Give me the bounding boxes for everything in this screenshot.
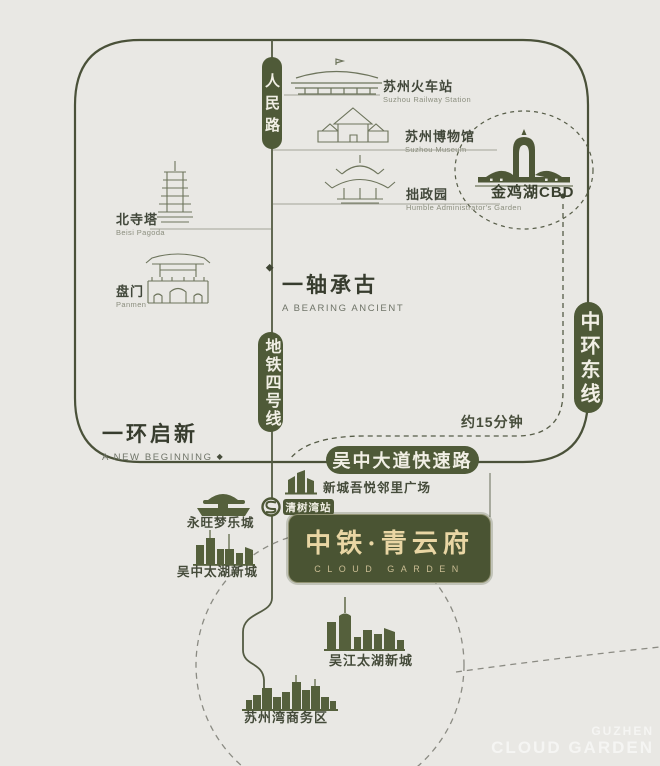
railway-station-label: 苏州火车站 Suzhou Railway Station <box>383 80 471 105</box>
travel-time-label: 约15分钟 <box>461 415 524 430</box>
wuzhong-taihu-label: 吴中太湖新城 <box>177 566 258 580</box>
panmen-icon <box>146 254 210 303</box>
museum-label-en: Suzhou Museum <box>405 146 475 154</box>
beisi-pagoda-label-zh: 北寺塔 <box>116 213 165 227</box>
jinji-lake-cbd-icon <box>475 129 573 186</box>
wuyue-plaza-icon <box>285 470 317 495</box>
metro-logo-icon <box>263 499 280 516</box>
jinji-lake-cbd-label: 金鸡湖CBD <box>491 185 575 202</box>
museum-label: 苏州博物馆 Suzhou Museum <box>405 130 475 155</box>
watermark-line2: CLOUD GARDEN <box>491 738 654 758</box>
qingshuwan-station-chip: 清树湾站 <box>283 499 334 515</box>
aeon-mall-icon <box>197 494 250 516</box>
panmen-label-en: Panmen <box>116 301 146 309</box>
map-artwork <box>0 0 660 766</box>
diamond-marker: ◆ <box>217 452 225 461</box>
panmen-label-zh: 盘门 <box>116 285 146 299</box>
wuzhong-expressway-pill: 吴中大道快速路 <box>326 446 479 474</box>
watermark-line1: GUZHEN <box>491 725 654 739</box>
humble-garden-icon <box>325 155 395 203</box>
suzhou-bay-label: 苏州湾商务区 <box>244 711 328 725</box>
axis-slogan-en: A BEARING ANCIENT <box>282 303 404 314</box>
location-map: 人民路 地铁四号线 中环东线 吴中大道快速路 苏州火车站 Suzhou Rail… <box>0 0 660 766</box>
project-name: 中铁·青云府 <box>305 523 474 560</box>
axis-slogan-zh: 一轴承古 <box>282 269 404 299</box>
suzhou-museum-icon <box>318 108 388 142</box>
aeon-mall-label: 永旺梦乐城 <box>187 517 255 531</box>
humble-garden-label-en: Humble Administrator's Garden <box>406 204 522 212</box>
wujiang-taihu-skyline-icon <box>324 597 405 651</box>
wuzhong-taihu-skyline-icon <box>193 530 255 566</box>
wuyue-plaza-label: 新城吾悦邻里广场 <box>323 482 431 496</box>
wujiang-taihu-label: 吴江太湖新城 <box>329 654 413 668</box>
ring-slogan-en: A NEW BEGINNING◆ <box>102 452 224 463</box>
ring-slogan-en-text: A NEW BEGINNING <box>102 452 213 463</box>
project-name-en: CLOUD GARDEN <box>314 564 465 574</box>
railway-station-icon <box>291 59 382 94</box>
beisi-pagoda-label-en: Beisi Pagoda <box>116 229 165 237</box>
east-dashed-line <box>456 647 660 672</box>
railway-station-label-en: Suzhou Railway Station <box>383 96 471 104</box>
beisi-pagoda-label: 北寺塔 Beisi Pagoda <box>116 213 165 238</box>
project-box: 中铁·青云府 CLOUD GARDEN <box>288 514 491 583</box>
ring-slogan-zh: 一环启新 <box>102 418 224 448</box>
suzhou-bay-skyline-icon <box>242 675 338 711</box>
middle-ring-east-pill: 中环东线 <box>574 302 603 413</box>
renmin-road-pill: 人民路 <box>262 57 282 149</box>
ring-slogan: 一环启新 A NEW BEGINNING◆ <box>102 418 224 463</box>
metro-line-4-pill: 地铁四号线 <box>258 332 283 432</box>
museum-label-zh: 苏州博物馆 <box>405 130 475 144</box>
railway-station-label-zh: 苏州火车站 <box>383 80 471 94</box>
watermark: GUZHEN CLOUD GARDEN <box>491 725 654 758</box>
axis-slogan: 一轴承古 A BEARING ANCIENT <box>282 269 404 314</box>
panmen-label: 盘门 Panmen <box>116 285 146 310</box>
ring-road-line <box>75 40 588 462</box>
